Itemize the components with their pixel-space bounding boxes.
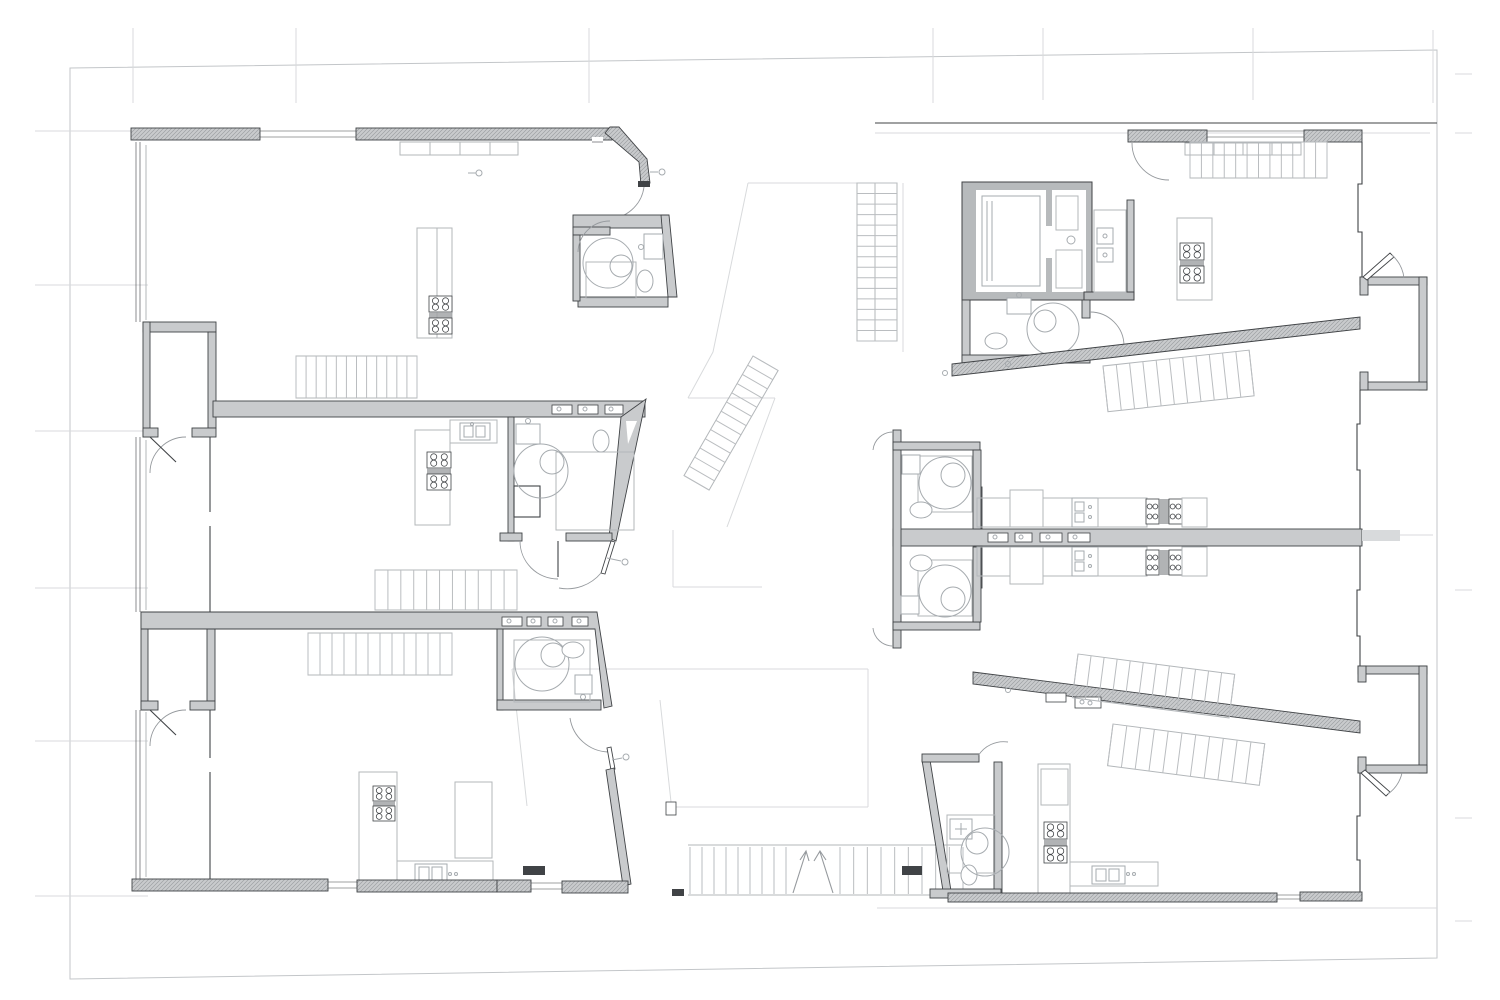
floor-plan-drawing: Apartment building floor plan — seven un… [0,0,1500,1000]
toilet [637,270,653,292]
up-arrow-right [814,851,833,893]
kitchen-unit1 [400,142,518,338]
door-knob [476,170,482,176]
floor-plan-page: Apartment building floor plan — seven un… [0,0,1500,1000]
stair-unit4 [1190,142,1327,178]
diagonal-wall-lower-right [973,672,1360,733]
cooktop-burners [1180,266,1204,283]
right-wing [873,123,1437,902]
diagonal-wall-upper-right [943,317,1361,376]
elevator-core [962,182,1092,300]
bathroom2-door-swing [520,541,558,579]
stair-lower-right-b [1108,724,1265,785]
bathroom4-door-swing [1090,312,1124,346]
entry-niche-1 [143,322,216,473]
shower [583,238,633,288]
stair-unit3 [308,633,452,675]
window-strip [260,131,356,137]
toilet [910,502,932,518]
galley-kitchen-bottom [977,547,1207,584]
sink [901,596,919,614]
central-stair-lower [684,356,778,490]
central-stair-upper [857,183,897,341]
top-grid-ticks [133,28,1433,103]
wall-niche [1015,533,1032,542]
cooktop-burners [373,786,395,801]
exterior-wall-bottom-left [132,879,628,893]
left-level-ticks [35,131,148,896]
cooktop-burners [1044,846,1067,863]
sink [575,675,592,694]
stair-unit1 [296,356,417,398]
cooktop-burners [429,318,452,334]
west-facade-glazing [136,142,210,879]
shower [919,457,971,509]
kitchen-unit7 [1038,764,1158,893]
entry-niche-2 [141,612,215,746]
sink [516,424,540,444]
cooktop-burners [427,452,451,468]
cooktop-burners [373,806,395,821]
wardrobe-unit4 [1185,143,1301,155]
cooktop-burners [1180,243,1204,260]
wall-niche [502,617,522,626]
angled-entry-wall [605,127,665,219]
east-facade [1357,142,1362,893]
toilet [910,555,932,571]
exterior-wall-top-left [131,128,612,142]
shower [919,565,971,617]
cooktop-burners [1146,499,1159,524]
unit2-courtyard-door [559,541,628,589]
cooktop-burners [1044,822,1067,839]
unit4-top-door-swing [1132,143,1169,180]
bathroom-unit7 [922,742,1009,899]
sink [1097,228,1113,244]
wall-niche [527,617,541,626]
site-boundary [35,28,1472,979]
wall-niche [1040,533,1062,542]
toilet [961,865,977,885]
sink [1007,298,1031,314]
left-wing [131,127,677,893]
wall-niche [572,617,588,626]
stair-unit2 [375,570,517,610]
diagonal-wedge-wall [609,399,646,541]
bathroom-unit1 [573,215,677,307]
unit3-courtyard-door [570,718,631,886]
right-level-ticks [1455,74,1472,921]
cooktop-burners [1169,550,1182,575]
stair-upper-right [1103,350,1254,412]
sink [644,234,663,259]
spine-exterior-fin [1362,530,1400,541]
galley-kitchen-top [977,490,1207,527]
kitchen-unit2 [415,420,497,525]
entry-niche-3 [1360,253,1427,390]
cabinet [514,486,540,517]
up-arrow-left [793,851,809,893]
kitchen-island-unit4 [1177,218,1212,300]
wall-niche [578,405,598,414]
wall-niche [988,533,1008,542]
entrance-pier [666,802,676,815]
wall-niche [548,617,563,626]
toilet [562,642,584,658]
sink [902,455,920,474]
diagonal-wall-unit3 [606,768,631,886]
bathroom7-door-swing [978,742,1008,756]
toilet [985,333,1007,349]
exterior-wall-bottom-right [948,892,1362,902]
step-cheek-wall [523,866,545,875]
kitchen-unit3 [359,772,493,886]
cooktop-burners [1146,550,1159,575]
wall-niche [1046,693,1066,702]
bathroom-unit5b [873,547,981,646]
wall-niche [1068,533,1090,542]
toilet [593,430,609,452]
cooktop-burners [427,474,451,490]
cooktop-burners [429,296,452,312]
wall-niche [605,405,623,414]
shower-tray [586,262,636,298]
entrance-threshold [672,889,684,896]
door-leaf [150,710,176,735]
door-leaf [150,437,176,462]
cooktop-burners [1169,499,1182,524]
wall-niche [552,405,572,414]
entry-niche-4 [1358,666,1427,796]
sink [1097,248,1113,262]
unit1-entry-door-swing [607,187,644,219]
step-cheek-wall [902,866,922,875]
door-knob [659,169,665,175]
